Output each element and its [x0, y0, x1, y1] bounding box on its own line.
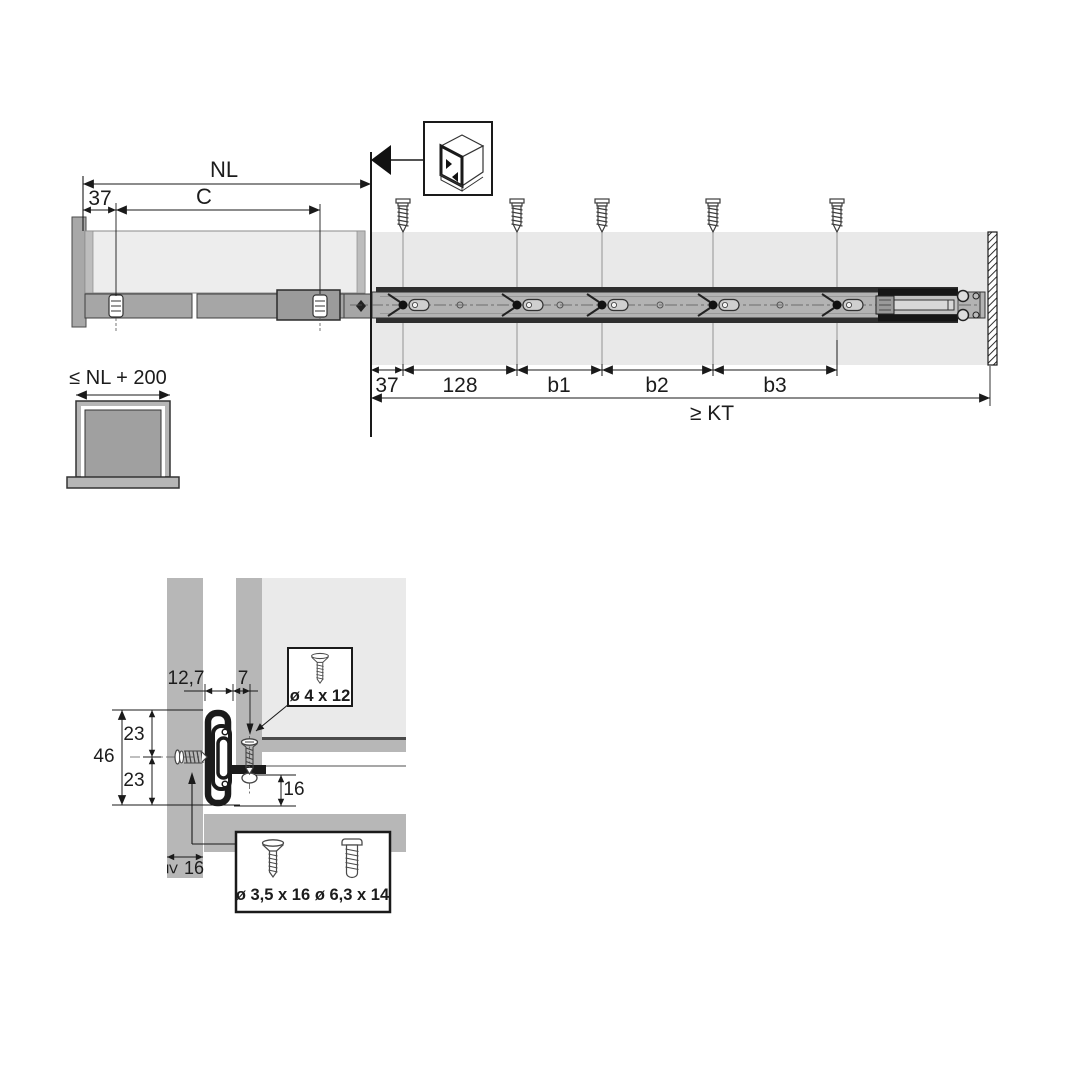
side-screw-label: ø 3,5 x 16 — [236, 887, 310, 904]
front-offset-dimension-label: 37 — [88, 188, 111, 209]
half-height-upper-label: 23 — [123, 725, 144, 744]
middle-rail-segment — [277, 290, 340, 320]
mounting-screw-icons — [396, 199, 844, 232]
drawer-rail-front — [85, 294, 192, 318]
nl-dimension-label: NL — [210, 159, 238, 181]
drawer-clip-front — [109, 295, 123, 332]
drawer-front-view — [67, 395, 179, 488]
cabinet-rail — [350, 287, 985, 323]
drawer-body — [85, 231, 365, 293]
slide-thickness-label: 12,7 — [168, 669, 205, 688]
slide-height-label: 46 — [93, 747, 114, 766]
bottom-clearance-label: 16 — [283, 780, 304, 799]
diagram-canvas — [0, 0, 1080, 1080]
cabinet-side-panel — [167, 578, 203, 878]
front-pointer-arrow-icon — [371, 145, 391, 175]
drawer-clip-rear — [313, 295, 327, 332]
screw-offset-label: 7 — [238, 669, 249, 688]
cabinet-icon-box — [424, 122, 492, 195]
c-dimension-label: C — [196, 186, 212, 208]
min-panel-symbol: ≥ — [164, 864, 182, 874]
press-screw-label: ø 6,3 x 14 — [315, 887, 389, 904]
drawer-side-view — [72, 217, 372, 332]
segment-label-b1: b1 — [547, 375, 570, 396]
drawer-slide-installation-drawing: NL 37 C 37 128 b1 b2 b3 ≥ KT ≤ NL + 200 … — [0, 0, 1080, 1080]
drawer-screw-label: ø 4 x 12 — [290, 688, 351, 705]
min-panel-value-label: 16 — [184, 859, 204, 877]
segment-label-b2: b2 — [645, 375, 668, 396]
kt-dimension-label: ≥ KT — [690, 403, 734, 424]
segment-label-37: 37 — [375, 375, 398, 396]
segment-label-128: 128 — [442, 375, 477, 396]
half-height-lower-label: 23 — [123, 771, 144, 790]
drawer-front-panel — [72, 217, 86, 327]
front-width-label: ≤ NL + 200 — [69, 368, 167, 388]
cabinet-front-edge-hatch — [988, 232, 997, 365]
segment-label-b3: b3 — [763, 375, 786, 396]
drawer-bottom-board — [262, 740, 406, 752]
